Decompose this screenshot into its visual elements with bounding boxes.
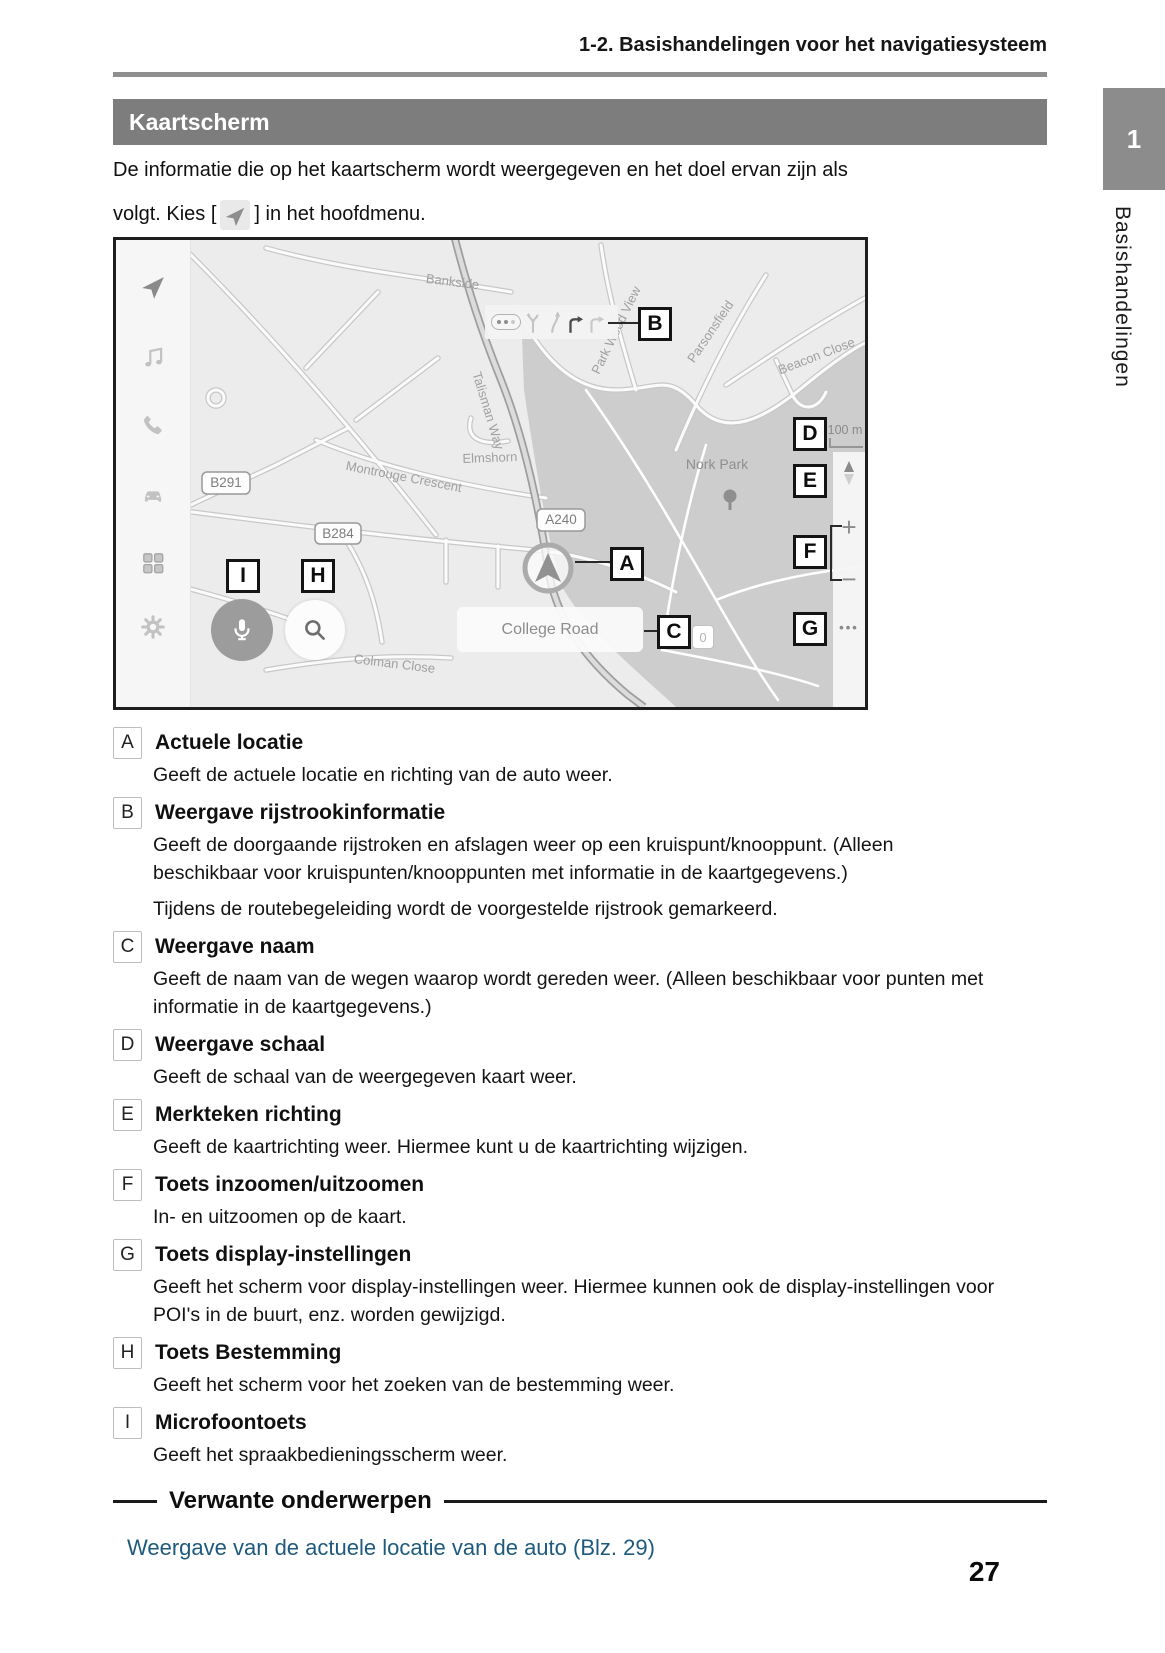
related-topics: Verwante onderwerpen Weergave van de act… xyxy=(113,1487,1047,1561)
section-a-desc: Geeft de actuele locatie en richting van… xyxy=(153,761,1003,789)
chip-b: B xyxy=(113,797,142,829)
compass-icon xyxy=(833,460,865,491)
section-c-desc: Geeft de naam van de wegen waarop wordt … xyxy=(153,965,1003,1021)
section-i: IMicrofoontoets Geeft het spraakbedienin… xyxy=(113,1407,1047,1469)
intro-line-1: De informatie die op het kaartscherm wor… xyxy=(113,148,1047,192)
section-d-title: Weergave schaal xyxy=(155,1033,325,1057)
chip-c: C xyxy=(113,931,142,963)
gear-icon xyxy=(140,614,166,640)
microphone-button xyxy=(211,599,273,661)
section-b-title: Weergave rijstrookinformatie xyxy=(155,801,445,825)
callout-a: A xyxy=(610,547,644,581)
section-f-desc: In- en uitzoomen op de kaart. xyxy=(153,1203,1003,1231)
car-icon xyxy=(140,482,166,508)
callout-b-connector xyxy=(608,322,638,324)
section-d-desc: Geeft de schaal van de weergegeven kaart… xyxy=(153,1063,1003,1091)
section-f-title: Toets inzoomen/uitzoomen xyxy=(155,1173,424,1197)
section-b-desc-1: Geeft de doorgaande rijstroken en afslag… xyxy=(153,831,1003,887)
counter-badge: 0 xyxy=(692,625,714,649)
callout-c: C xyxy=(657,615,691,649)
nav-app-sidebar xyxy=(116,240,191,707)
phone-icon xyxy=(140,412,166,438)
chip-h: H xyxy=(113,1337,142,1369)
chip-e: E xyxy=(113,1099,142,1131)
destination-search-button xyxy=(285,600,345,660)
callout-e: E xyxy=(793,464,827,498)
lane-arrow-fork-icon xyxy=(524,309,542,335)
section-i-title: Microfoontoets xyxy=(155,1411,307,1435)
intro-line-2: volgt. Kies [] in het hoofdmenu. xyxy=(113,192,1047,236)
section-d: DWeergave schaal Geeft de schaal van de … xyxy=(113,1029,1047,1091)
section-c-title: Weergave naam xyxy=(155,935,315,959)
manual-page: 1-2. Basishandelingen voor het navigatie… xyxy=(0,0,1165,1653)
poi-label-nork-park: Nork Park xyxy=(686,456,749,472)
section-b-desc-2: Tijdens de routebegeleiding wordt de voo… xyxy=(153,895,1003,923)
chip-g: G xyxy=(113,1239,142,1271)
lane-arrow-slight-right-icon xyxy=(545,309,563,335)
page-header: 1-2. Basishandelingen voor het navigatie… xyxy=(113,34,1047,57)
page-number: 27 xyxy=(880,1556,1000,1588)
section-a: AActuele locatie Geeft de actuele locati… xyxy=(113,727,1047,789)
current-location-marker xyxy=(520,540,576,596)
related-rule-right xyxy=(444,1500,1047,1503)
lane-dots-pill xyxy=(491,314,521,330)
display-settings-button: ••• xyxy=(833,620,865,635)
callout-d: D xyxy=(793,417,827,451)
chip-f: F xyxy=(113,1169,142,1201)
chapter-number-tab: 1 xyxy=(1103,88,1165,190)
section-f: FToets inzoomen/uitzoomen In- en uitzoom… xyxy=(113,1169,1047,1231)
callout-g: G xyxy=(793,612,827,646)
callout-h: H xyxy=(301,559,335,593)
header-rule xyxy=(113,72,1047,77)
definition-list: AActuele locatie Geeft de actuele locati… xyxy=(113,722,1047,1561)
callout-a-connector xyxy=(575,561,610,563)
lane-arrow-right-turn-active-icon xyxy=(566,309,584,335)
chip-a: A xyxy=(113,727,142,759)
chip-i: I xyxy=(113,1407,142,1439)
music-icon xyxy=(140,344,166,370)
map-nav-icon xyxy=(140,275,166,301)
callout-b: B xyxy=(638,307,672,341)
callout-i: I xyxy=(226,559,260,593)
section-i-desc: Geeft het spraakbedieningsscherm weer. xyxy=(153,1441,1003,1469)
street-name-bar: College Road xyxy=(457,607,643,652)
road-badge-b284: B284 xyxy=(322,526,354,541)
callout-f-bracket xyxy=(830,525,842,581)
apps-grid-icon xyxy=(140,550,166,576)
map-scale-bar xyxy=(829,438,863,448)
section-a-title: Actuele locatie xyxy=(155,731,303,755)
section-h-title: Toets Bestemming xyxy=(155,1341,341,1365)
lane-guidance-bar xyxy=(485,305,618,339)
road-badge-b291: B291 xyxy=(210,475,242,490)
chapter-side-label: Basishandelingen xyxy=(1105,206,1139,506)
section-e: EMerkteken richting Geeft de kaartrichti… xyxy=(113,1099,1047,1161)
section-h-desc: Geeft het scherm voor het zoeken van de … xyxy=(153,1371,1003,1399)
section-g-title: Toets display-instellingen xyxy=(155,1243,411,1267)
chip-d: D xyxy=(113,1029,142,1061)
section-c: CWeergave naam Geeft de naam van de wege… xyxy=(113,931,1047,1021)
section-g: GToets display-instellingen Geeft het sc… xyxy=(113,1239,1047,1329)
road-badge-a240: A240 xyxy=(545,512,577,527)
street-label-elmshorn: Elmshorn xyxy=(462,449,517,466)
intro-paragraph: De informatie die op het kaartscherm wor… xyxy=(113,148,1047,236)
section-g-desc: Geeft het scherm voor display-instelling… xyxy=(153,1273,1003,1329)
related-link[interactable]: Weergave van de actuele locatie van de a… xyxy=(127,1535,655,1561)
lane-arrow-right-turn-icon xyxy=(587,309,605,335)
section-title-bar: Kaartscherm xyxy=(113,99,1047,145)
section-b: BWeergave rijstrookinformatie Geeft de d… xyxy=(113,797,1047,923)
section-e-desc: Geeft de kaartrichting weer. Hiermee kun… xyxy=(153,1133,1003,1161)
related-heading: Verwante onderwerpen xyxy=(169,1487,432,1515)
related-rule-left xyxy=(113,1500,157,1503)
callout-f: F xyxy=(793,535,827,569)
map-scale-label: 100 m xyxy=(826,423,864,437)
nav-arrow-icon xyxy=(220,200,250,230)
section-h: HToets Bestemming Geeft het scherm voor … xyxy=(113,1337,1047,1399)
section-e-title: Merkteken richting xyxy=(155,1103,342,1127)
callout-c-connector xyxy=(644,630,657,632)
map-figure: Bankside Talisman Way Montrouge Crescent… xyxy=(113,237,868,710)
